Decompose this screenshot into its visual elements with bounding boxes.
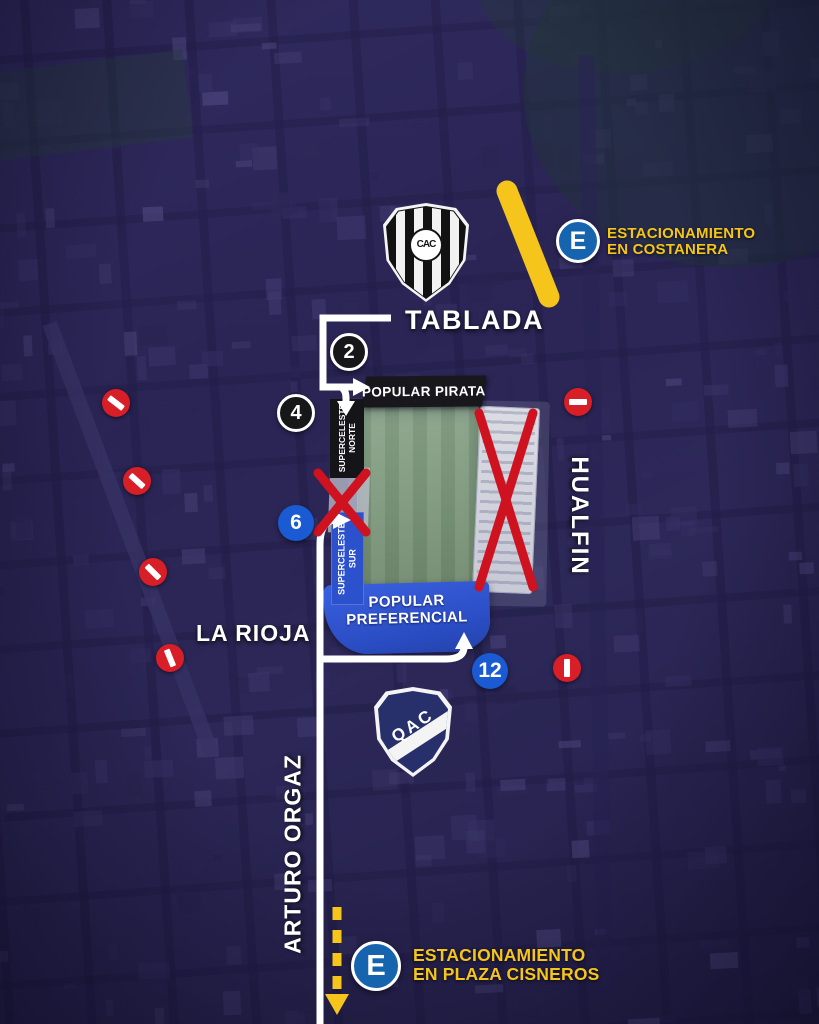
pirata-branch-line [341,387,346,402]
no-entry-bar [164,649,176,668]
closed-section-marks [318,413,533,587]
route-marker-6-label: 6 [290,511,302,535]
parking-plaza-label: ESTACIONAMIENTO EN PLAZA CISNEROS [413,946,600,984]
access-route-lines [320,318,464,1024]
map-canvas: POPULAR PREFERENCIAL POPULAR PIRATA SUPE… [0,0,819,1024]
arrow-up-gate12 [455,632,473,649]
parking-e-badge-costanera: E [556,219,600,263]
no-entry-icon-4 [156,644,184,672]
street-label-hualfin: HUALFIN [565,456,593,575]
no-entry-bar [145,564,162,581]
route-marker-12: 12 [472,653,508,689]
route-marker-6: 6 [278,505,314,541]
route-marker-4-label: 4 [290,402,301,425]
arrow-right-pirata [353,378,370,396]
route-overlay [0,0,819,1024]
arrow-down-parking [325,994,349,1015]
street-label-la-rioja: LA RIOJA [196,620,311,647]
no-entry-bar [128,473,145,490]
arrow-down-norte [337,401,355,416]
no-entry-icon-6 [553,654,581,682]
parking-plaza-line2: EN PLAZA CISNEROS [413,965,600,984]
parking-e-badge-plaza: E [351,941,401,991]
parking-zone-bar [507,191,549,297]
home-monogram: CAC [417,239,436,250]
parking-plaza-line1: ESTACIONAMIENTO [413,946,600,965]
no-entry-bar [107,395,125,411]
parking-costanera-line1: ESTACIONAMIENTO [607,226,755,242]
route-marker-2-label: 2 [343,341,354,364]
no-entry-bar [569,399,587,405]
arturo-orgaz-route-line [320,520,335,1024]
parking-costanera-label: ESTACIONAMIENTO EN COSTANERA [607,226,755,258]
parking-e-letter: E [570,227,587,256]
route-marker-12-label: 12 [478,659,501,683]
no-entry-bar [564,659,570,677]
no-entry-icon-3 [139,558,167,586]
street-label-arturo-orgaz: ARTURO ORGAZ [280,754,307,954]
route-marker-4: 4 [277,394,315,432]
no-entry-icon-2 [123,467,151,495]
gate12-route-line [320,647,464,659]
parking-e-letter: E [366,950,385,983]
street-label-tablada: TABLADA [405,305,544,336]
parking-costanera-line2: EN COSTANERA [607,242,755,258]
no-entry-icon-1 [102,389,130,417]
crest-monogram-circle: CAC [409,228,443,262]
no-entry-icon-5 [564,388,592,416]
route-marker-2: 2 [330,333,368,371]
